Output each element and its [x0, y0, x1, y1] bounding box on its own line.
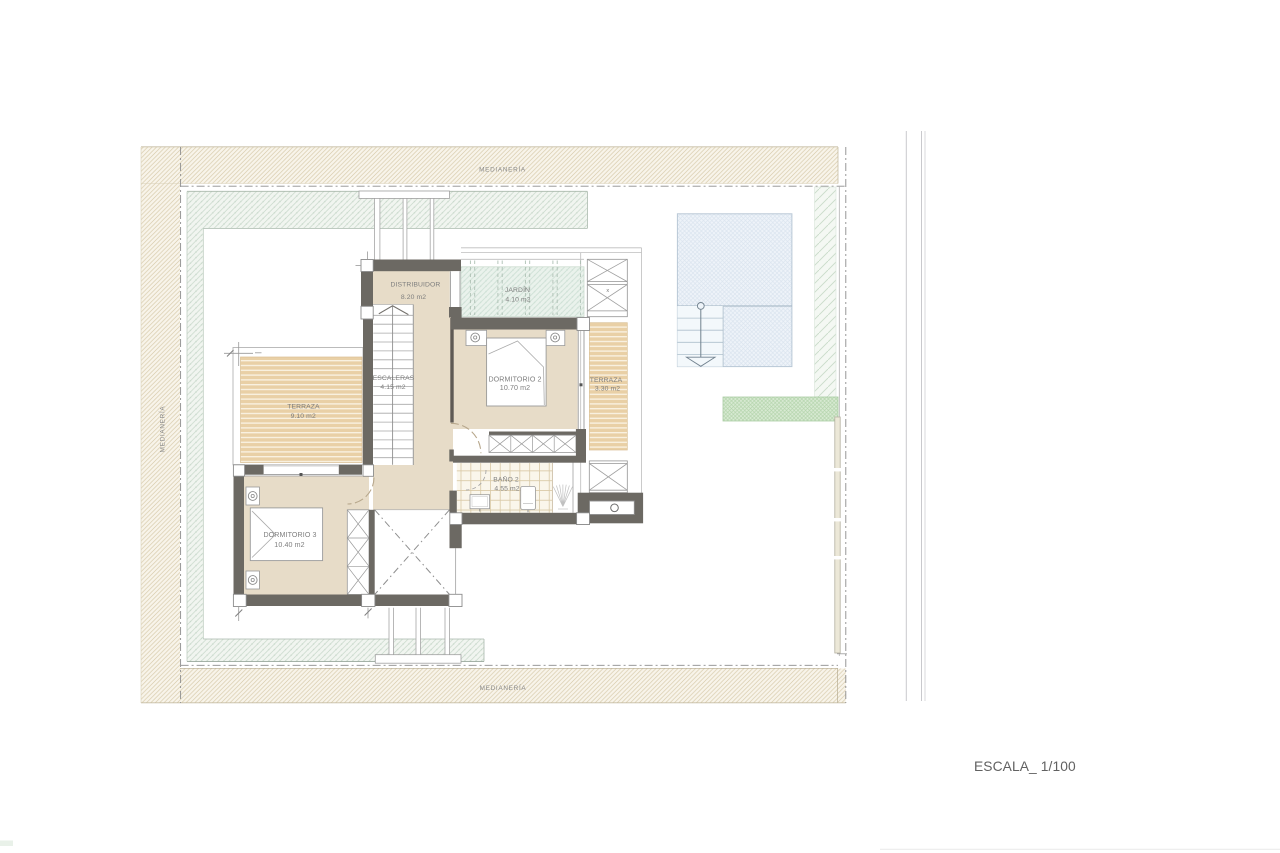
svg-text:DORMITORIO 2: DORMITORIO 2: [488, 375, 541, 383]
svg-text:MEDIANERÍA: MEDIANERÍA: [480, 683, 527, 692]
svg-text:4.10 m2: 4.10 m2: [505, 296, 530, 303]
svg-text:10.70 m2: 10.70 m2: [500, 384, 530, 392]
svg-text:JARDÍN: JARDÍN: [505, 285, 530, 294]
svg-text:4.15 m2: 4.15 m2: [380, 384, 405, 391]
svg-text:DORMITORIO 3: DORMITORIO 3: [263, 531, 316, 539]
svg-text:x: x: [606, 288, 609, 294]
svg-text:MEDIANERÍA: MEDIANERÍA: [158, 406, 167, 453]
svg-text:MEDIANERÍA: MEDIANERÍA: [479, 165, 526, 174]
svg-text:TERRAZA: TERRAZA: [590, 377, 623, 384]
svg-text:ESCALERAS: ESCALERAS: [373, 375, 415, 382]
svg-text:TERRAZA: TERRAZA: [287, 404, 320, 411]
svg-text:ESCALA_ 1/100: ESCALA_ 1/100: [974, 759, 1076, 774]
svg-text:10.40 m2: 10.40 m2: [274, 541, 304, 549]
svg-text:3.30 m2: 3.30 m2: [595, 386, 620, 393]
svg-text:4.55 m2: 4.55 m2: [494, 486, 519, 493]
svg-text:8.20 m2: 8.20 m2: [401, 294, 426, 301]
svg-text:DISTRIBUIDOR: DISTRIBUIDOR: [391, 282, 441, 289]
svg-text:BAÑO 2: BAÑO 2: [493, 475, 519, 484]
svg-text:9.10 m2: 9.10 m2: [291, 413, 316, 420]
